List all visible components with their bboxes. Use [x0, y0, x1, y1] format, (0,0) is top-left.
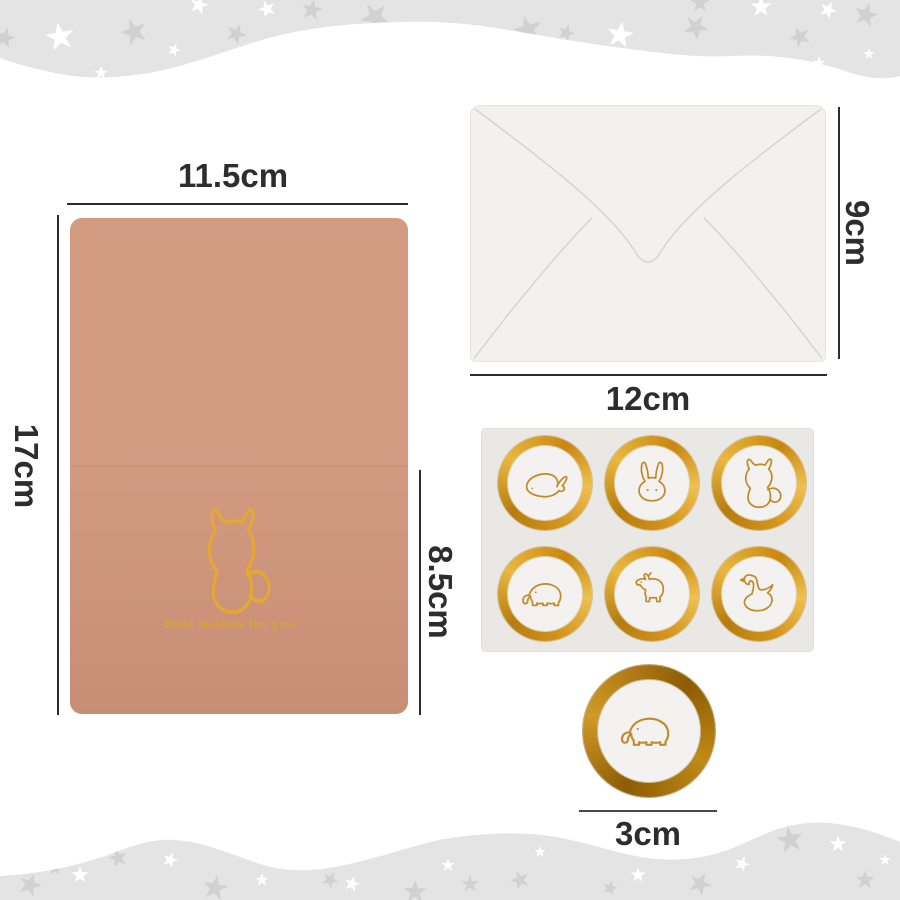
sticker-rabbit	[605, 436, 699, 530]
card-width-label: 11.5cm	[133, 158, 333, 194]
greeting-card: Best wishes for you	[70, 218, 408, 714]
sticker-cat	[712, 436, 806, 530]
star-icon	[400, 41, 420, 61]
product-infographic: Best wishes for you 11.5cm 17cm 8.5cm 9c…	[0, 0, 900, 900]
horse-icon	[614, 556, 690, 632]
card-half-height-label: 8.5cm	[422, 527, 458, 657]
wave-shape	[0, 823, 900, 900]
seal-animal-icon	[616, 698, 682, 764]
card-message: Best wishes for you	[100, 616, 360, 631]
swan-icon	[721, 556, 797, 632]
envelope-height-label: 9cm	[839, 178, 875, 288]
rabbit-icon	[614, 445, 690, 521]
envelope	[470, 105, 826, 362]
envelope-flap	[471, 106, 825, 362]
sticker-diameter-label: 3cm	[568, 816, 728, 852]
sticker-whale	[498, 436, 592, 530]
whale-icon	[507, 445, 583, 521]
card-height-line	[57, 215, 59, 715]
card-width-line	[67, 203, 408, 205]
card-height-label: 17cm	[8, 406, 44, 526]
sticker-diameter-line	[579, 810, 717, 812]
card-fold-line	[70, 466, 408, 467]
star-icon	[488, 63, 499, 74]
card-half-height-line	[419, 470, 421, 715]
sticker-elephant	[498, 547, 592, 641]
sticker-sheet	[481, 428, 814, 652]
bottom-wave-border	[0, 780, 900, 900]
elephant-icon	[507, 556, 583, 632]
cat-icon	[721, 445, 797, 521]
cat-foil-icon	[186, 503, 278, 618]
envelope-width-label: 12cm	[548, 381, 748, 417]
single-sticker	[583, 665, 715, 797]
sticker-horse	[605, 547, 699, 641]
top-wave-border	[0, 0, 900, 120]
seal-inner	[597, 679, 701, 783]
sticker-swan	[712, 547, 806, 641]
envelope-width-line	[470, 374, 827, 376]
sticker-grid	[482, 429, 806, 641]
